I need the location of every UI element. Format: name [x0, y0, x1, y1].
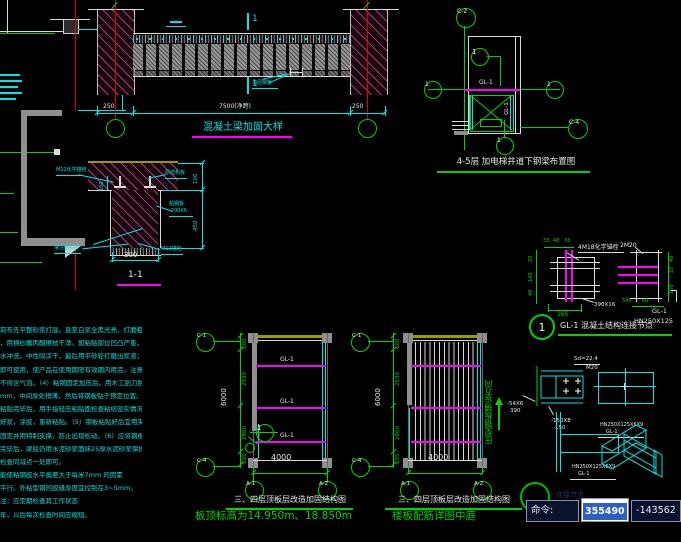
coordinate-y-value: -143562 — [632, 501, 680, 521]
edge-beam — [413, 335, 477, 338]
isometric-beam-detail — [596, 410, 680, 486]
bubble-label: A-1 — [401, 482, 418, 488]
bubble-label: 1 — [547, 82, 563, 88]
anchor-rod — [571, 250, 573, 302]
dim-text-cluster — [0, 74, 20, 76]
grid-line — [327, 333, 328, 468]
plate-label: -54X6 — [507, 402, 523, 408]
command-prompt-label: 命令: — [527, 501, 578, 521]
grid-line — [327, 474, 328, 481]
note-line: 即可使用，使产品在使用期限有效期内用完。注意搅拌不 — [0, 367, 142, 380]
bubble-label: C-4 — [569, 120, 587, 126]
detail-number-bubble: 1 — [529, 314, 555, 340]
bubble-label: 1 — [425, 82, 441, 88]
dim-text: 6000 — [221, 378, 228, 406]
detail-title: 1-1 — [128, 271, 143, 280]
grid-line — [482, 333, 483, 468]
wall-line — [258, 340, 322, 341]
dim-ext — [162, 190, 204, 191]
note-line: 不得含气泡。（4）粘钢固定加压后，用木工刮刀刮抹胶层 — [0, 380, 142, 393]
title-underline — [558, 334, 672, 336]
detail-number: 1 — [539, 322, 546, 333]
dim-text: 6000 — [375, 378, 382, 406]
dim-line — [202, 163, 203, 249]
flange-line — [550, 262, 600, 263]
grid-bubble: C-4 — [196, 458, 215, 477]
mini-dim — [302, 68, 303, 76]
column-hatch — [97, 10, 135, 95]
plan-subtitle: 板顶标高为14.950m、18.850m — [195, 511, 352, 522]
label-underline — [54, 253, 81, 254]
edge-beam — [258, 335, 322, 338]
centerline — [625, 368, 626, 406]
dim-text: 60 — [642, 299, 648, 304]
direction-arrow — [498, 404, 500, 430]
wall-line — [468, 133, 521, 134]
column-line — [510, 95, 511, 130]
grid-bubble: C-2 — [456, 8, 476, 28]
pit-outline — [480, 119, 502, 127]
leader-line — [500, 56, 501, 86]
plate-strips — [133, 44, 350, 70]
label-underline — [161, 254, 183, 255]
steel-beam-line — [411, 441, 481, 443]
beam-label: GL-1 — [479, 80, 493, 86]
dim-text: 100 — [194, 168, 200, 184]
dim-text-cluster — [0, 86, 18, 88]
flange-line — [550, 291, 600, 292]
bubble-label: C-4 — [352, 459, 369, 465]
dim-text: 600 — [396, 336, 402, 349]
column-line — [472, 95, 473, 130]
endplate-detail — [532, 364, 588, 408]
grid-line — [0, 152, 58, 153]
flange-line — [550, 285, 600, 286]
dim-text: 4000 — [428, 454, 448, 462]
grid-line — [0, 193, 14, 194]
beam-top-line — [133, 33, 350, 34]
plan-subtitle: 楼板配筋详图中庭 — [392, 511, 476, 522]
plan-title: 4-5层 加电梯井道下钢梁布置图 — [436, 158, 596, 167]
dim-text: 450 — [194, 205, 200, 231]
wall — [407, 343, 412, 405]
bolt-line — [618, 274, 658, 276]
grid-bubble: C-1 — [351, 333, 370, 352]
bubble-label: C-1 — [197, 334, 214, 340]
dim-text: 250 — [352, 104, 363, 110]
grid-line — [0, 232, 18, 233]
dim-line — [112, 260, 159, 261]
beam-name-label: GL-1 — [578, 472, 590, 477]
glue-label: 灌注结构胶 — [54, 246, 79, 251]
line — [0, 31, 64, 32]
note-line: 前布先平整砂浆打底，直至白浆全黑光亮，打磨粗糙后再 — [0, 327, 142, 340]
note-line: 能使粘钢胶水平偏差大于每米7mm 的因素 — [0, 472, 142, 485]
line — [671, 290, 677, 291]
mini-label — [170, 21, 182, 23]
note-line: 固定并用特制支撑，防止出现松动。（6）应将钢板粘结面 — [0, 433, 142, 446]
grid-bubble: 1 — [424, 81, 442, 99]
label-underline — [578, 252, 624, 253]
dim-text: 165 — [557, 312, 568, 318]
dim-text: 300 — [124, 252, 137, 259]
dim-line — [408, 473, 482, 474]
plan-title: 三、四层顶板层改造加固结构图 — [385, 496, 523, 504]
leader-line — [250, 432, 278, 433]
stair-line — [452, 125, 468, 126]
dim-tick — [200, 245, 206, 251]
wall-line — [515, 36, 516, 133]
coordinate-y-input[interactable]: -143562 — [631, 500, 681, 522]
grid-line — [520, 127, 568, 128]
bolt-line — [618, 266, 658, 268]
dim-line — [240, 333, 241, 468]
dim-line — [536, 250, 537, 304]
note-line: 好浆，涂胶，重新粘贴。（5）钢板粘贴好后宜用夹具夹紧 — [0, 419, 142, 432]
title-underline — [437, 171, 590, 173]
label-underline — [169, 216, 193, 217]
bolt-line — [618, 282, 658, 284]
bubble-label: A-1 — [246, 482, 263, 488]
plate-plan — [598, 372, 654, 404]
line — [7, 0, 8, 33]
grid-line — [253, 474, 254, 481]
plate-label: 粘钢板 — [169, 202, 184, 207]
wall — [21, 110, 27, 246]
beam-line — [658, 250, 659, 302]
detail-title: GL-1 混凝土结构连接节点 — [560, 322, 653, 330]
dim-text-cluster — [0, 92, 22, 94]
anchor-pin — [119, 176, 121, 188]
grid-bubble — [358, 119, 377, 138]
grid-bubble: 1 — [496, 137, 514, 155]
detail-title: 混凝土梁加固大样 — [188, 123, 298, 133]
grid-bubble: C-4 — [568, 119, 588, 139]
dim-line — [107, 176, 108, 190]
dim-text: 20 — [529, 252, 534, 262]
wall-line — [409, 408, 410, 458]
bubble-label: C-4 — [197, 459, 214, 465]
steel-beam-line — [411, 365, 481, 367]
column-line — [469, 95, 470, 130]
dim-text: 545 — [622, 299, 632, 304]
bubble-label: A-2 — [319, 482, 336, 488]
beam-line — [636, 250, 637, 302]
steel-beam-line — [256, 365, 326, 367]
stair-line — [452, 121, 468, 122]
grid-line — [0, 33, 55, 34]
beam-label: GL-1 — [280, 433, 294, 439]
beam-line — [556, 412, 557, 472]
section-cut-mark — [247, 77, 249, 94]
bubble-label: A-2 — [474, 482, 491, 488]
wall-line — [520, 36, 521, 133]
beam-line — [560, 412, 561, 472]
dim-text: 40 — [529, 284, 534, 296]
dim-text: 25 — [670, 264, 675, 273]
dim-text: 4000 — [271, 454, 291, 462]
dim-text: 2530 — [396, 360, 402, 386]
center-mark — [624, 383, 625, 390]
beam-label: GL-1 — [652, 308, 667, 315]
beam-label: GL-1 — [280, 357, 294, 363]
dim-line — [97, 113, 386, 114]
anchor-label: 4M18化学锚栓 — [578, 245, 619, 251]
label-underline — [165, 178, 187, 179]
grid-line — [504, 120, 505, 137]
dim-line — [393, 333, 394, 468]
note-line: 完毕后，梁底仍用水泥砂浆面抹25厚水泥砂浆保护。加固 — [0, 446, 142, 459]
ghost-title: 连接节点 — [556, 492, 584, 499]
column-line — [513, 95, 514, 130]
leader-line — [487, 56, 501, 57]
wall-line — [468, 36, 521, 37]
grid-bubble — [106, 119, 125, 138]
section-cut-mark — [247, 13, 249, 30]
note-line: 注：应定期检查其工作状态 — [0, 498, 142, 511]
notes-block: 前布先平整砂浆打底，直至白浆全黑光亮，打磨粗糙后再 ，用棉纱蘸丙酮擦拭干净。如粘… — [0, 327, 142, 527]
grid-bubble: C-4 — [351, 458, 370, 477]
bolt-label: 2M20 — [620, 243, 637, 249]
steel-beam-line — [256, 407, 326, 409]
anchor-rod — [565, 250, 567, 302]
wall-node — [63, 19, 79, 34]
note-line: mm，中间厚处稍薄，然后将钢板贴于预定位置。粘贴完 — [0, 393, 142, 406]
deck-direction-note: 压型钢板铺设方向 — [485, 348, 493, 444]
mini-dim — [290, 72, 302, 73]
dim-text: 33 — [543, 239, 549, 244]
bubble-label: C-2 — [457, 9, 475, 15]
stair-line — [452, 129, 468, 130]
dim-text: 7500(净跨) — [219, 104, 251, 110]
grid-line — [213, 341, 240, 342]
note-line: 检查同减点一处即可。 — [0, 459, 142, 472]
centerline — [75, 0, 76, 110]
section-cut-label: 1 — [252, 15, 258, 24]
bolt-spec-label: Sd=22.4 — [574, 357, 598, 363]
bolt-label: M20 — [586, 366, 598, 372]
wall-line — [413, 340, 477, 341]
command-prompt-box[interactable]: 命令: — [526, 500, 579, 522]
dim-text: 140 — [529, 264, 534, 282]
wall — [21, 110, 62, 116]
mini-label-underline — [166, 26, 186, 27]
dim-text: 2800 — [396, 414, 402, 440]
note-line: 年，以后每次检查时间应缩短。 — [0, 512, 142, 525]
bubble-label: 1 — [497, 138, 513, 144]
coordinate-x-value: 355490 — [583, 503, 627, 520]
dim-text: 48 — [553, 239, 559, 244]
dim-text: 605 — [396, 450, 402, 464]
coordinate-x-input[interactable]: 355490 — [581, 498, 629, 522]
grip-handle — [54, 149, 60, 155]
note-line: ，用棉纱蘸丙酮擦拭干净。如粘贴部位凹凸严重，现场应 — [0, 340, 142, 353]
detail-marker: 1 — [471, 48, 489, 66]
grid-line — [213, 466, 240, 467]
slab-label: 原结构板 — [165, 171, 185, 176]
dim-line — [253, 473, 327, 474]
beam-label: GL-1 — [280, 399, 294, 405]
dim-text-cluster — [0, 98, 16, 100]
plan-title: 三、四层顶板层改造加固结构图 — [226, 496, 354, 504]
wall — [454, 131, 468, 135]
centerline — [115, 0, 116, 119]
dim-text: 250 — [103, 104, 114, 110]
beam-bottom-line — [133, 76, 350, 77]
plate-label: -390X16 — [592, 303, 615, 309]
centerline — [367, 0, 368, 119]
title-underline — [192, 136, 292, 138]
connection-plate — [557, 257, 595, 299]
line — [676, 290, 677, 302]
cad-canvas: 1100 1 1 加固钢板 250 7500(净跨) 250 混凝土梁加固大样 … — [0, 0, 681, 542]
wall — [252, 343, 257, 431]
label-underline — [56, 175, 82, 176]
label-underline — [252, 88, 278, 89]
marker-label: 1 — [257, 425, 273, 432]
note-line: 粘贴完毕后，用手指轻压粘贴面检查粘结密实情况，如有 — [0, 406, 142, 419]
grid-bubble: 1 — [546, 81, 564, 99]
dim-text: 150 — [670, 276, 675, 294]
steel-beam-line — [464, 89, 520, 91]
dim-line — [78, 110, 126, 111]
marker-label: 1 — [472, 49, 488, 56]
grid-bubble: C-1 — [196, 333, 215, 352]
detail-marker: 1 — [256, 424, 274, 442]
note-line: 平行。外粘型钢的胶缝厚度宜控制在3~5mm。 — [0, 485, 142, 498]
anchor-dots — [136, 38, 348, 40]
plate-dim-label: 390 — [510, 409, 521, 415]
center-mark — [621, 386, 629, 387]
grid-line — [368, 341, 393, 342]
dim-text: 2530 — [243, 360, 249, 386]
beam-line — [630, 252, 662, 253]
bubble-label: C-1 — [352, 334, 369, 340]
beam-hatch — [112, 190, 158, 248]
note-line: 水冲洗，中性晾凉干，最后用平砂轮打磨出浆液；（3）粘结 — [0, 353, 142, 366]
anchor-label: M12锚栓 — [161, 247, 182, 252]
title-underline — [117, 284, 161, 286]
grid-line — [0, 262, 42, 263]
flange-line — [550, 268, 600, 269]
steel-beam-line — [411, 407, 481, 409]
dim-text: 40 — [670, 253, 675, 262]
anchor-label: M12化学锚栓 — [56, 168, 87, 173]
dim-tick — [480, 470, 486, 476]
dim-text: 33 — [564, 239, 570, 244]
arrow-head-icon — [495, 397, 503, 405]
column-hatch — [350, 10, 388, 95]
dim-line — [544, 247, 574, 248]
node-circle — [245, 443, 255, 453]
plate-size-label: -200X6 — [169, 209, 187, 214]
dim-text-cluster — [0, 80, 22, 82]
